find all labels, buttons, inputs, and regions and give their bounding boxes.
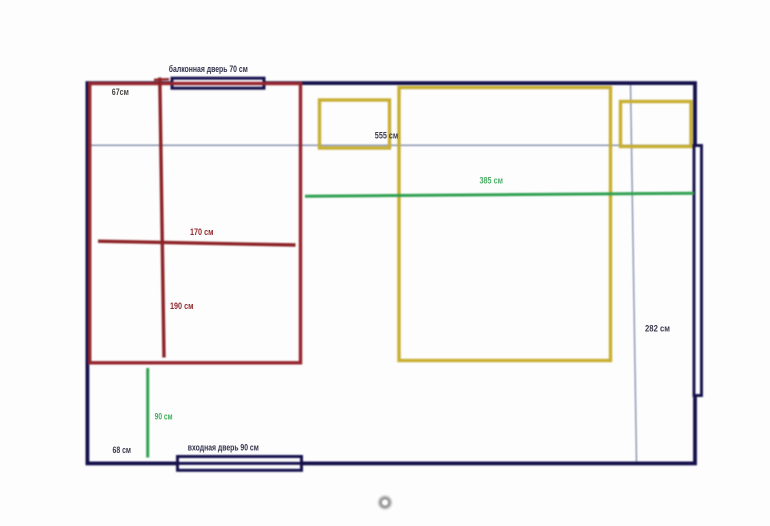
svg-text:282 см: 282 см — [645, 324, 670, 334]
svg-text:68 см: 68 см — [113, 445, 132, 455]
svg-text:190 см: 190 см — [170, 301, 194, 311]
svg-text:67см: 67см — [112, 87, 129, 97]
svg-text:385 см: 385 см — [480, 176, 504, 186]
svg-text:170 см: 170 см — [190, 227, 214, 237]
svg-text:555 см: 555 см — [375, 130, 399, 140]
svg-text:входная дверь 90 см: входная дверь 90 см — [188, 443, 259, 453]
svg-text:балконная дверь 70 см: балконная дверь 70 см — [169, 64, 248, 74]
svg-text:90 см: 90 см — [155, 412, 173, 422]
